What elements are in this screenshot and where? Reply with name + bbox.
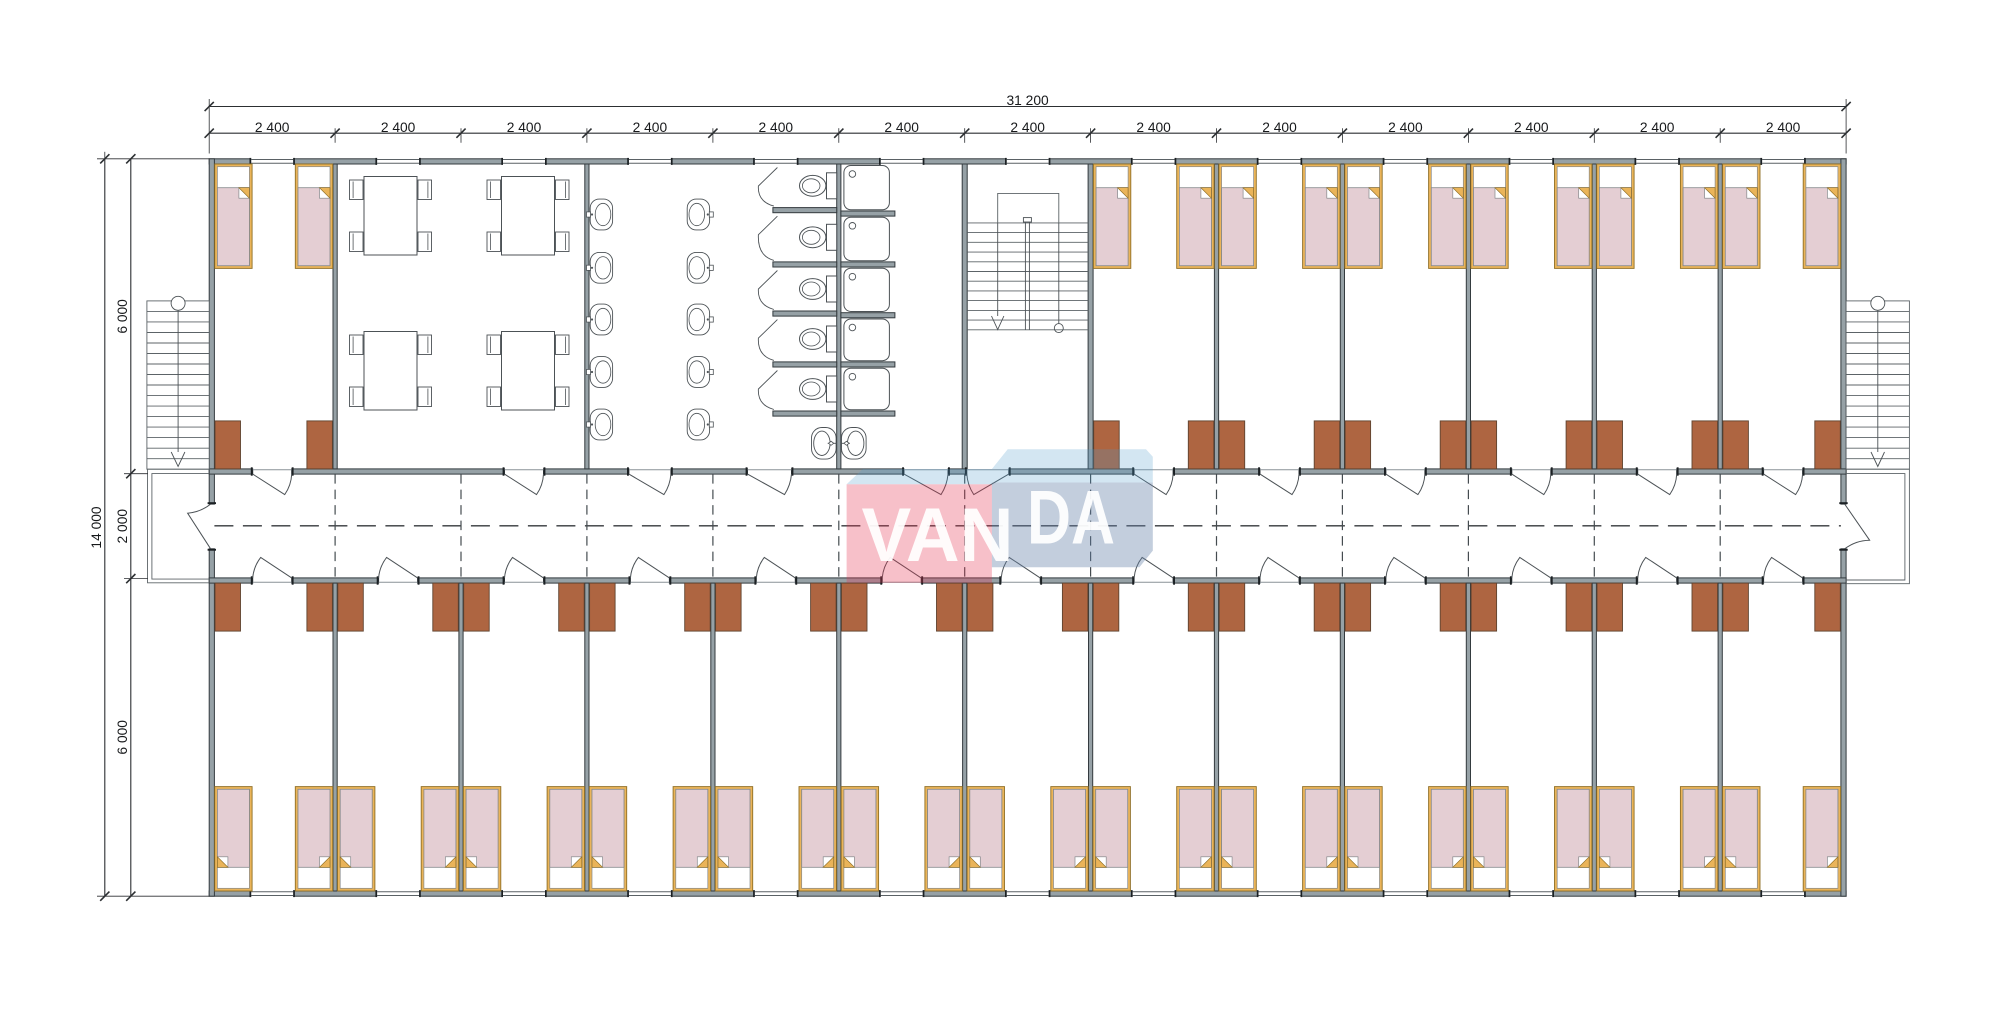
svg-text:2 400: 2 400 bbox=[1262, 120, 1297, 135]
svg-text:6 000: 6 000 bbox=[115, 299, 130, 334]
svg-text:2 400: 2 400 bbox=[633, 120, 668, 135]
svg-text:2 400: 2 400 bbox=[1010, 120, 1045, 135]
svg-text:2 400: 2 400 bbox=[507, 120, 542, 135]
svg-text:14 000: 14 000 bbox=[89, 506, 104, 549]
svg-text:2 400: 2 400 bbox=[1640, 120, 1675, 135]
svg-text:2 400: 2 400 bbox=[1136, 120, 1171, 135]
svg-text:2 400: 2 400 bbox=[1514, 120, 1549, 135]
svg-text:31 200: 31 200 bbox=[1006, 93, 1049, 108]
svg-text:2 400: 2 400 bbox=[1388, 120, 1423, 135]
svg-text:DA: DA bbox=[1027, 476, 1115, 561]
svg-text:2 400: 2 400 bbox=[381, 120, 416, 135]
svg-text:6 000: 6 000 bbox=[115, 720, 130, 755]
svg-text:2 000: 2 000 bbox=[115, 509, 130, 544]
svg-text:2 400: 2 400 bbox=[255, 120, 290, 135]
svg-text:VAN: VAN bbox=[862, 493, 1014, 578]
svg-text:2 400: 2 400 bbox=[759, 120, 794, 135]
svg-text:2 400: 2 400 bbox=[884, 120, 919, 135]
svg-text:2 400: 2 400 bbox=[1766, 120, 1801, 135]
